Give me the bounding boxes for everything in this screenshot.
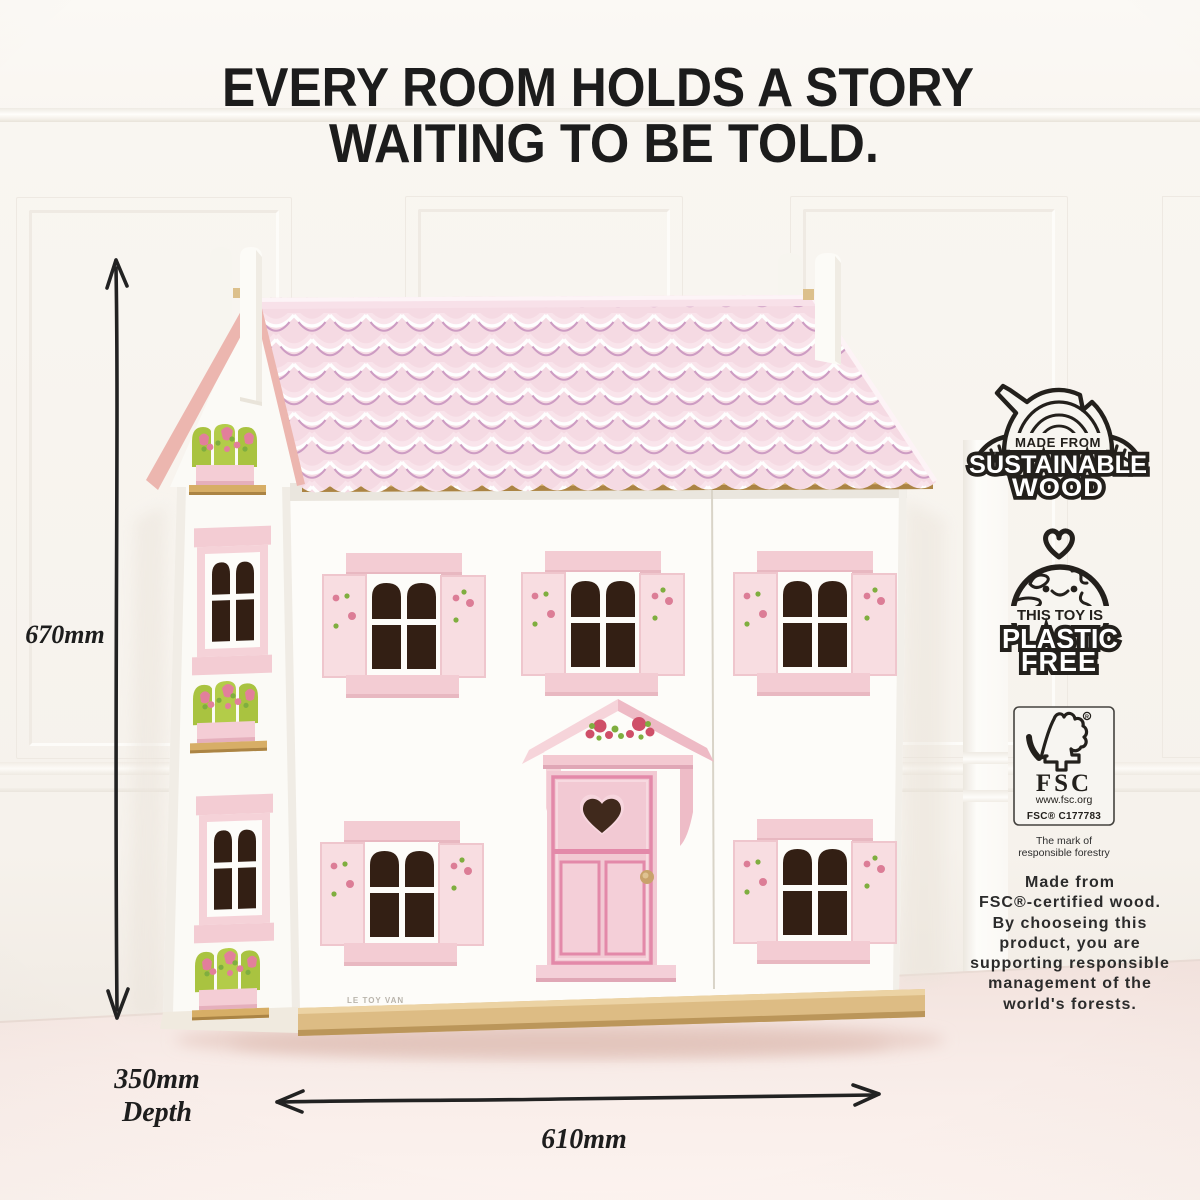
svg-text:FSC® C177783: FSC® C177783: [1027, 811, 1101, 822]
svg-text:WOOD: WOOD: [1012, 474, 1104, 502]
svg-text:MADE FROM: MADE FROM: [1015, 436, 1101, 450]
svg-text:R: R: [1085, 715, 1089, 721]
svg-text:FSC: FSC: [1036, 770, 1092, 797]
svg-text:WAITING TO BE TOLD.: WAITING TO BE TOLD.: [329, 112, 879, 174]
svg-text:EVERY ROOM HOLDS A STORY: EVERY ROOM HOLDS A STORY: [222, 56, 974, 118]
svg-text:LE TOY VAN: LE TOY VAN: [347, 996, 404, 1005]
svg-text:THIS TOY IS: THIS TOY IS: [1017, 608, 1103, 624]
svg-text:www.fsc.org: www.fsc.org: [1035, 794, 1093, 806]
svg-text:FREE: FREE: [1021, 646, 1097, 677]
